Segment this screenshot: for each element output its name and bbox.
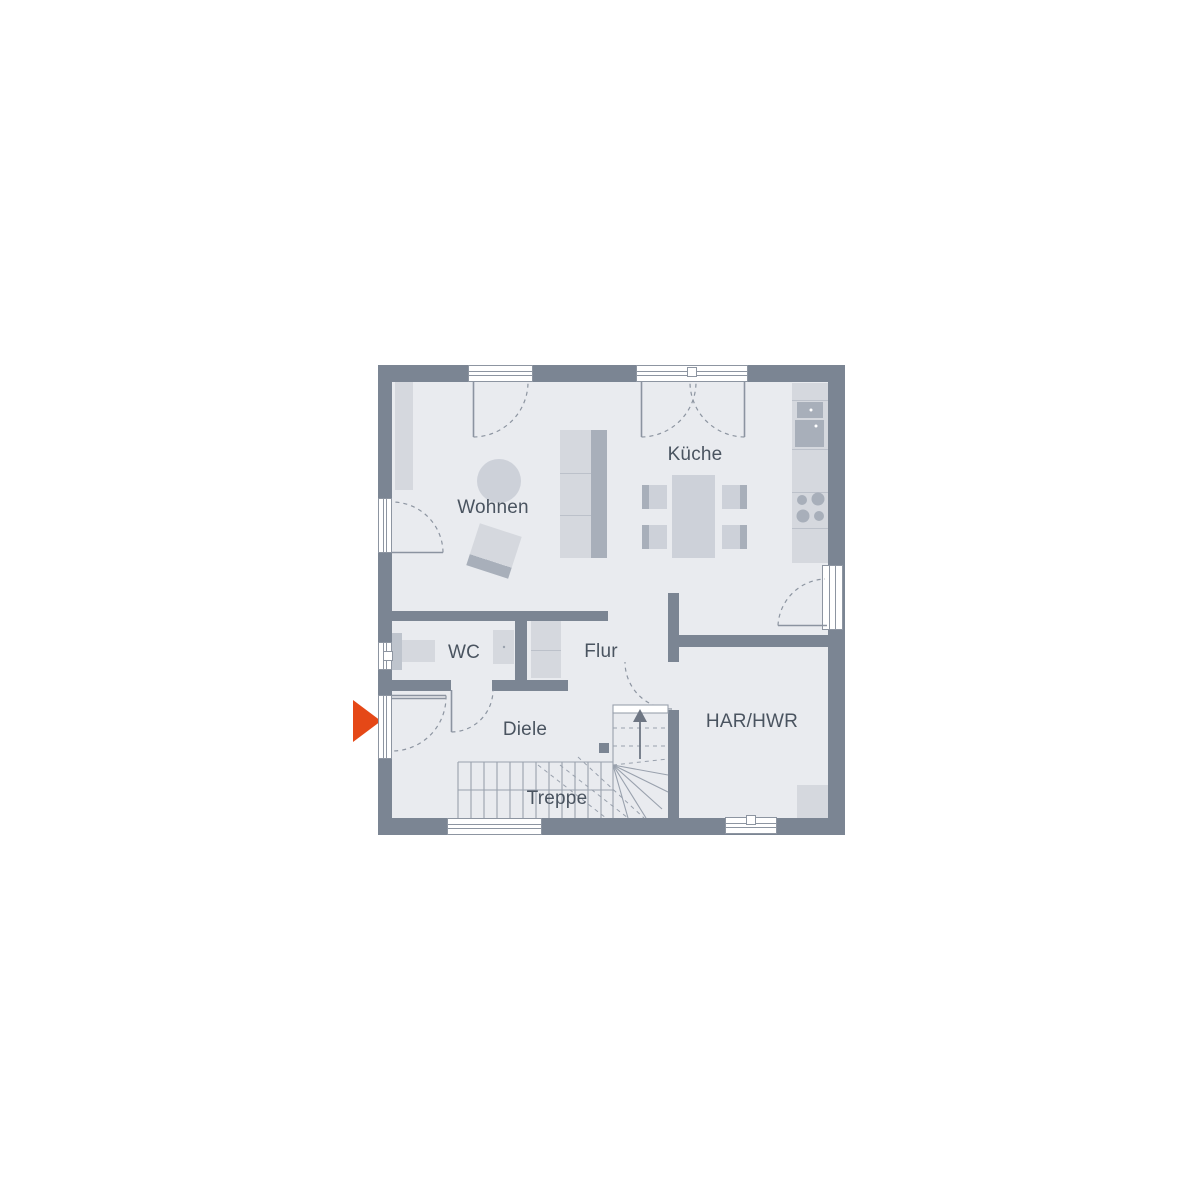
chair — [722, 525, 747, 549]
wall-treppe-har — [668, 710, 679, 818]
dining-table — [672, 475, 715, 558]
wall-wc-diele-right — [492, 680, 568, 691]
room-label-diele: Diele — [503, 719, 547, 741]
wall-wc-diele-left — [392, 680, 451, 691]
floor-area — [392, 382, 828, 818]
entrance-door — [378, 695, 392, 759]
newel-post — [599, 743, 609, 753]
washbasin-counter — [392, 633, 402, 670]
window-symbol — [746, 815, 756, 825]
chair — [642, 525, 667, 549]
chair — [642, 485, 667, 509]
terrace-door-left-wohnen — [378, 498, 392, 553]
floor-plan: Wohnen Küche WC Flur Diele HAR/HWR Trepp… — [378, 365, 845, 835]
wall-flur-kueche — [668, 593, 679, 662]
terrace-door-top-wohnen — [468, 365, 533, 382]
wall-wohnen-flur — [392, 611, 608, 621]
oven — [795, 420, 824, 447]
room-label-har-hwr: HAR/HWR — [706, 711, 798, 733]
wardrobe — [531, 621, 561, 678]
window-bottom-treppe — [447, 818, 542, 835]
terrace-door-right-kueche — [822, 565, 843, 630]
washbasin — [402, 640, 435, 662]
floor-plan-page: Wohnen Küche WC Flur Diele HAR/HWR Trepp… — [0, 0, 1200, 1200]
toilet — [493, 630, 514, 664]
utility-equipment — [797, 785, 828, 818]
entrance-arrow-icon — [353, 700, 381, 742]
sideboard — [395, 382, 413, 490]
door-symbol — [687, 367, 697, 377]
chair — [722, 485, 747, 509]
room-label-flur: Flur — [584, 641, 618, 663]
sofa — [560, 430, 607, 558]
room-label-kueche: Küche — [668, 444, 723, 466]
wall-kueche-har — [668, 635, 828, 647]
kitchen-appliance — [797, 402, 823, 418]
room-label-wohnen: Wohnen — [457, 497, 529, 519]
window-symbol — [383, 651, 393, 661]
room-label-treppe: Treppe — [527, 788, 588, 810]
room-label-wc: WC — [448, 642, 480, 664]
